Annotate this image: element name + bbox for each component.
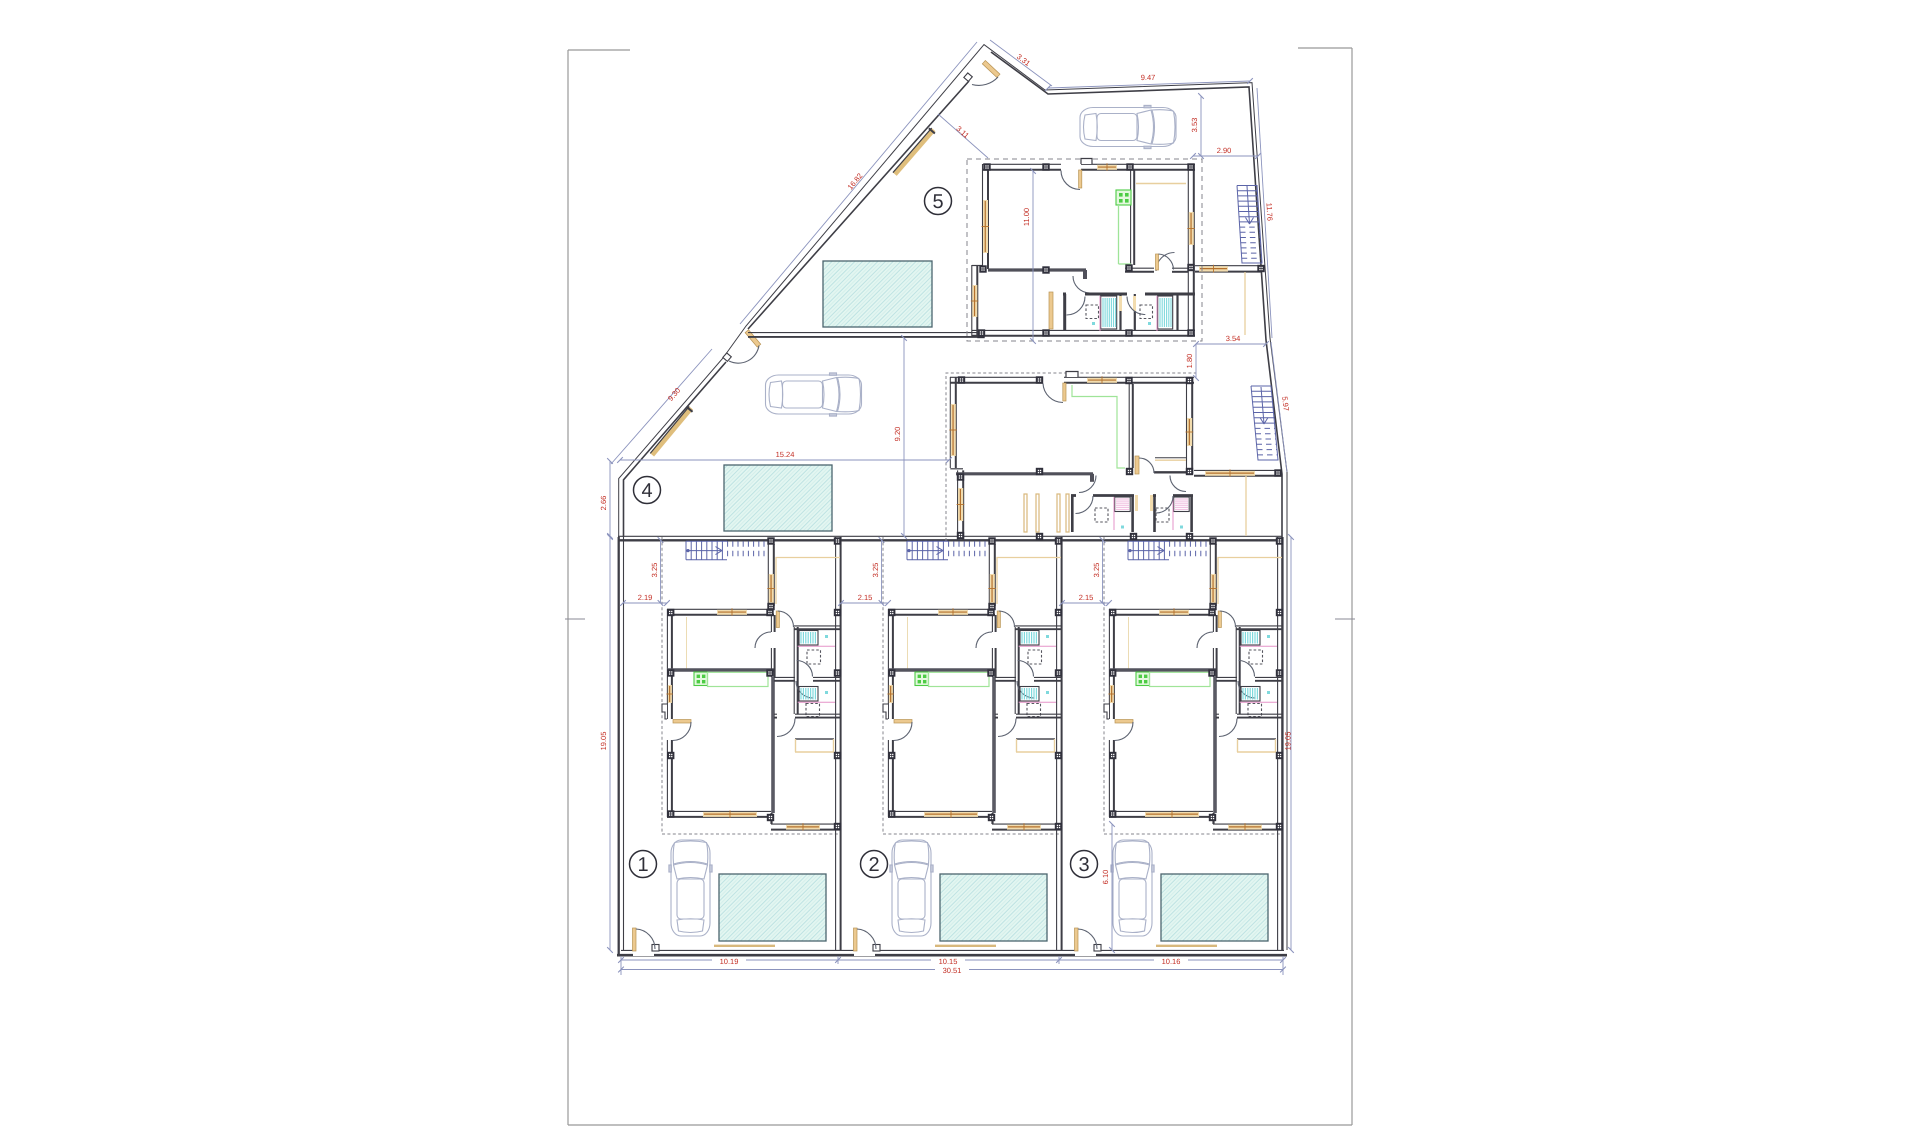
svg-text:15.24: 15.24: [776, 450, 795, 459]
svg-text:10.19: 10.19: [720, 957, 739, 966]
svg-text:2.19: 2.19: [638, 593, 653, 602]
svg-text:3.25: 3.25: [650, 563, 659, 578]
svg-text:2: 2: [868, 854, 879, 876]
svg-text:9.47: 9.47: [1141, 73, 1156, 82]
svg-text:3.25: 3.25: [1092, 563, 1101, 578]
svg-text:2.66: 2.66: [599, 496, 608, 511]
svg-text:30.51: 30.51: [943, 966, 962, 975]
svg-text:1: 1: [637, 854, 648, 876]
svg-text:5: 5: [932, 191, 943, 213]
svg-text:1.80: 1.80: [1185, 354, 1194, 369]
svg-text:2.90: 2.90: [1217, 146, 1232, 155]
svg-text:2.15: 2.15: [1079, 593, 1094, 602]
svg-text:2.15: 2.15: [858, 593, 873, 602]
svg-text:3.25: 3.25: [871, 563, 880, 578]
svg-text:3.53: 3.53: [1190, 118, 1199, 133]
svg-text:3.54: 3.54: [1226, 334, 1241, 343]
svg-text:10.16: 10.16: [1162, 957, 1181, 966]
svg-text:19.05: 19.05: [1284, 732, 1293, 751]
svg-text:9.20: 9.20: [893, 427, 902, 442]
svg-text:10.15: 10.15: [939, 957, 958, 966]
svg-text:19.05: 19.05: [599, 732, 608, 751]
svg-text:6.10: 6.10: [1101, 870, 1110, 885]
svg-text:11.76: 11.76: [1265, 203, 1275, 222]
svg-text:3: 3: [1078, 854, 1089, 876]
svg-text:5.97: 5.97: [1280, 396, 1291, 412]
svg-text:4: 4: [641, 480, 652, 502]
svg-text:11.00: 11.00: [1022, 208, 1031, 226]
